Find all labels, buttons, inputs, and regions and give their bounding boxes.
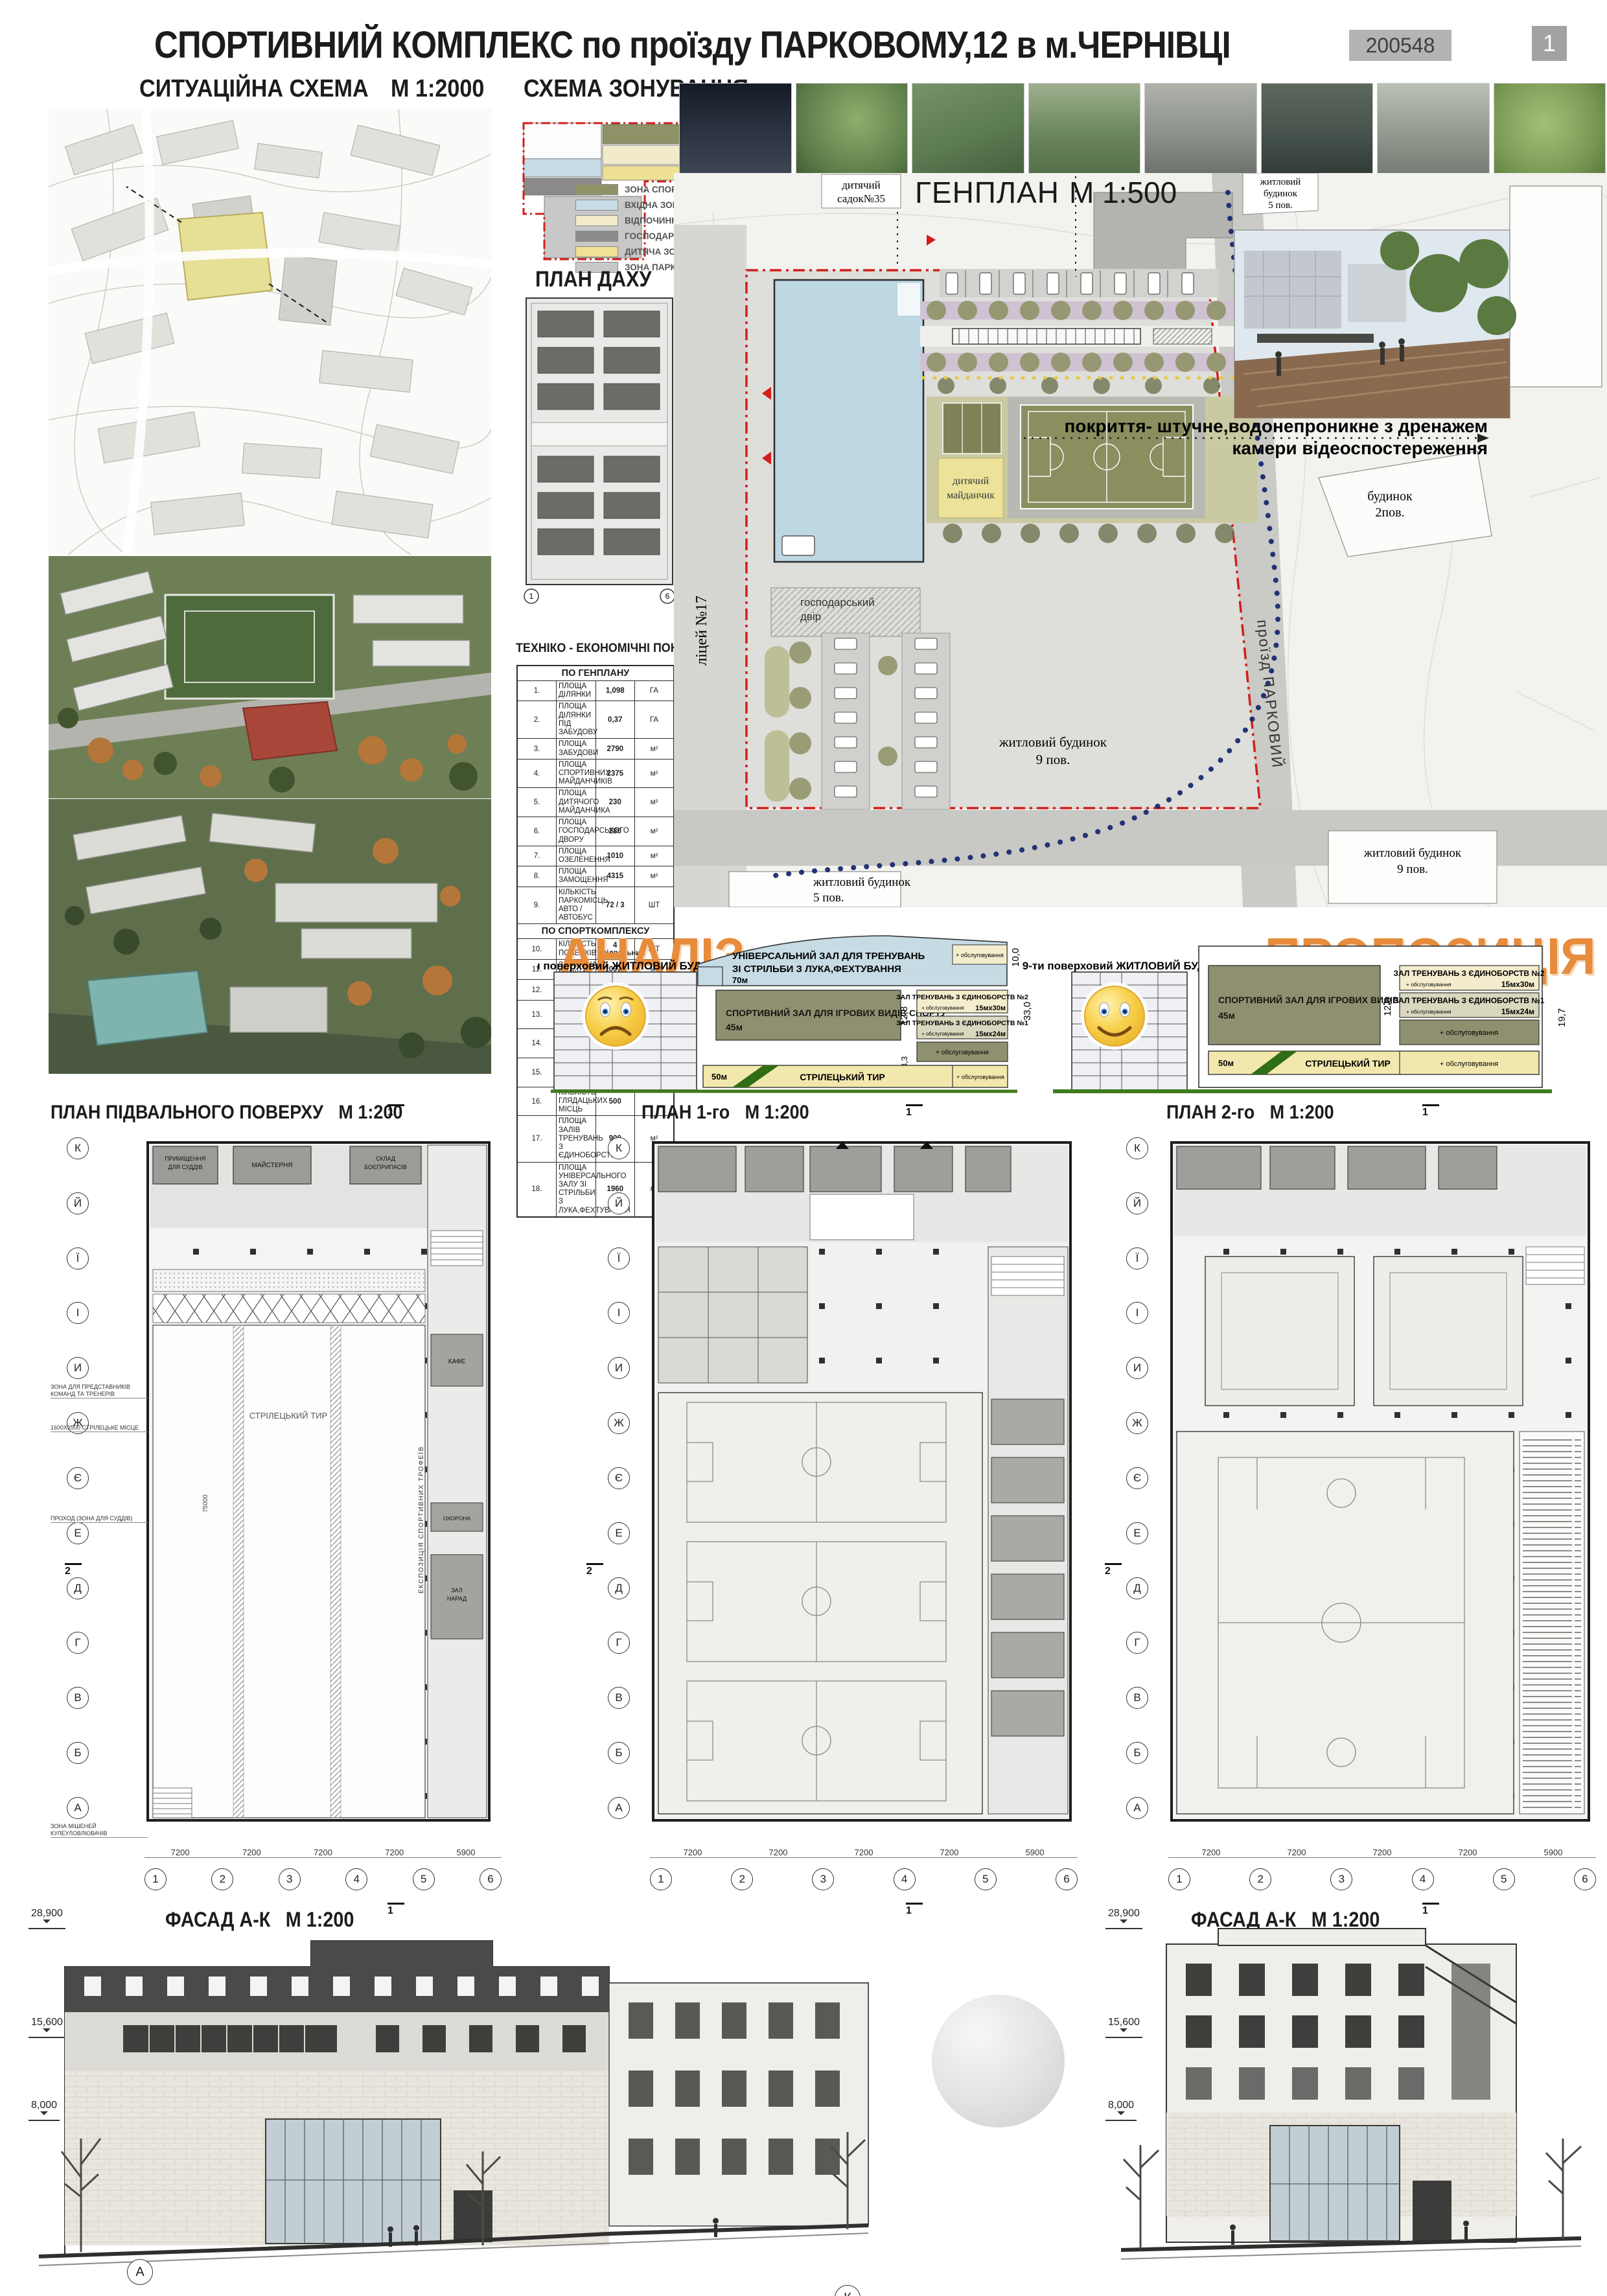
aerial-photo-stadium [49, 556, 491, 798]
tep-row: 4. ПЛОЩА СПОРТИВНИХ МАЙДАНЧИКІВ 2375 м² [517, 759, 674, 788]
svg-text:СТРІЛЕЦЬКИЙ ТИР: СТРІЛЕЦЬКИЙ ТИР [800, 1071, 885, 1082]
svg-text:ЗАЛ ТРЕНУВАНЬ З ЄДИНОБОРСТВ №: ЗАЛ ТРЕНУВАНЬ З ЄДИНОБОРСТВ №2 [1394, 969, 1545, 978]
svg-text:9 пов.: 9 пов. [1036, 752, 1070, 767]
axis-letter: Б [608, 1742, 630, 1764]
first-floor-plan-title: ПЛАН 1-го М 1:200 [642, 1102, 809, 1124]
coating-note: покриття- штучне,водонепроникне з дренаж… [1064, 416, 1488, 436]
axis-letters: КЙЇІИЖЄЕДГВБА [608, 1137, 630, 1819]
situation-scheme-title: СИТУАЦІЙНА СХЕМА М 1:2000 [139, 75, 484, 103]
axis-letter: Д [608, 1577, 630, 1599]
axis-letter: Є [1126, 1467, 1148, 1489]
axis-letter: Ї [1126, 1247, 1148, 1270]
axis-letter: Е [67, 1522, 89, 1544]
axis-letter: А [608, 1797, 630, 1819]
svg-text:будинок: будинок [1264, 189, 1298, 199]
axis-number: 2 [1249, 1868, 1271, 1890]
axis-letter: В [1126, 1687, 1148, 1709]
tep-group-genplan: ПО ГЕНПЛАНУ [517, 666, 674, 681]
svg-text:10,0: 10,0 [1010, 948, 1021, 967]
axis-number: 1 [145, 1868, 167, 1890]
svg-text:житловий: житловий [1260, 177, 1301, 187]
axis-letter: Г [1126, 1632, 1148, 1654]
axis-number: 5 [1493, 1868, 1515, 1890]
axis-numbers: 123456 [650, 1868, 1078, 1890]
analysis-proposal-diagrams: 9-ти поверховий ЖИТЛОВИЙ БУДИНОК УНІВЕРС… [538, 907, 1607, 1102]
sheet-number-badge: 1 [1532, 26, 1567, 61]
svg-text:ЗАЛ ТРЕНУВАНЬ З ЄДИНОБОРСТВ №: ЗАЛ ТРЕНУВАНЬ З ЄДИНОБОРСТВ №1 [1394, 996, 1545, 1005]
svg-text:70м: 70м [732, 975, 748, 985]
facade-a-k-drawing [26, 1905, 881, 2281]
genplan-map: господарський двір [674, 173, 1607, 907]
svg-text:ПРИМІЩЕННЯ: ПРИМІЩЕННЯ [165, 1155, 206, 1162]
svg-text:+ обслуговування: + обслуговування [956, 952, 1004, 958]
svg-text:майданчик: майданчик [947, 490, 995, 501]
svg-text:5 пов.: 5 пов. [1268, 200, 1293, 211]
legend-swatch [575, 231, 618, 242]
axis-letter: А [1126, 1797, 1148, 1819]
facade-proposal-drawing [1102, 1905, 1607, 2281]
svg-text:50м: 50м [1218, 1058, 1234, 1068]
sphere-watermark [932, 1995, 1065, 2128]
axis-letter: Й [67, 1192, 89, 1214]
axis-number: 5 [975, 1868, 997, 1890]
axis-letter: Ї [67, 1247, 89, 1270]
legend-swatch [575, 184, 618, 195]
svg-text:СКЛАД: СКЛАД [376, 1155, 395, 1162]
axis-letter: И [608, 1357, 630, 1379]
svg-text:СТРІЛЕЦЬКИЙ ТИР: СТРІЛЕЦЬКИЙ ТИР [249, 1411, 327, 1421]
axis-number: 1 [1168, 1868, 1190, 1890]
svg-text:М 1:500: М 1:500 [1069, 176, 1177, 209]
photo-kids-scooters [1494, 83, 1606, 174]
svg-text:45м: 45м [726, 1022, 743, 1032]
axis-letter: Д [1126, 1577, 1148, 1599]
svg-text:+ обслуговування: + обслуговування [956, 1074, 1004, 1080]
axis-number: 3 [1330, 1868, 1352, 1890]
camera-note: камери відеоспостереження [1232, 438, 1488, 458]
axis-letter: Ї [608, 1247, 630, 1270]
photo-night-park-lighting [679, 83, 792, 174]
axis-letter: Ж [608, 1412, 630, 1434]
svg-text:ЕКСПОЗИЦІЯ СПОРТИВНИХ ТРОФЕЇВ: ЕКСПОЗИЦІЯ СПОРТИВНИХ ТРОФЕЇВ [417, 1446, 425, 1594]
photo-rollerblading-people [1377, 83, 1490, 174]
svg-text:ЗАЛ ТРЕНУВАНЬ З ЄДИНОБОРСТВ №: ЗАЛ ТРЕНУВАНЬ З ЄДИНОБОРСТВ №1 [896, 1019, 1028, 1027]
reference-photo-strip [679, 83, 1606, 174]
photo-bike-lane [1144, 83, 1257, 174]
axis-letter: И [1126, 1357, 1148, 1379]
svg-text:15мх30м: 15мх30м [1501, 980, 1534, 989]
axis-letters: КЙЇІИЖЄЕДГВБА [1126, 1137, 1148, 1819]
svg-text:ліцей №17: ліцей №17 [693, 596, 710, 666]
axis-number: 4 [345, 1868, 367, 1890]
sport-hall-block [1208, 966, 1380, 1045]
second-floor-plan: КЙЇІИЖЄЕДГВБА [1089, 1137, 1601, 1915]
axis-letter: Є [67, 1467, 89, 1489]
axis-letter: Г [67, 1632, 89, 1654]
sad-face-icon [582, 982, 649, 1050]
basement-plan: КЙЇІИЖЄЕДГВБА ПРИМІЩЕННЯ ДЛЯ СУДДІВ МАЙС… [45, 1137, 499, 1915]
axis-letter: Б [67, 1742, 89, 1764]
presentation-board: СПОРТИВНИЙ КОМПЛЕКС по проїзду ПАРКОВОМУ… [0, 0, 1607, 2296]
tep-row: 2. ПЛОЩА ДІЛЯНКИ ПІД ЗАБУДОВУ 0,37 ГА [517, 701, 674, 739]
roof-plan: 1 6 [517, 293, 682, 610]
svg-text:15мх30м: 15мх30м [975, 1004, 1006, 1012]
axis-letter: В [608, 1687, 630, 1709]
svg-text:СПОРТИВНИЙ ЗАЛ ДЛЯ ІГРОВИХ ВИД: СПОРТИВНИЙ ЗАЛ ДЛЯ ІГРОВИХ ВИДІВ СПОРТУ [726, 1007, 947, 1018]
svg-text:МАЙСТЕРНЯ: МАЙСТЕРНЯ [252, 1161, 293, 1169]
svg-text:УНІВЕРСАЛЬНИЙ ЗАЛ ДЛЯ ТРЕНУВАН: УНІВЕРСАЛЬНИЙ ЗАЛ ДЛЯ ТРЕНУВАНЬ [732, 950, 925, 962]
svg-text:1: 1 [529, 592, 534, 601]
sports-complex-building [774, 280, 923, 562]
tep-title: ТЕХНІКО - ЕКОНОМІЧНІ ПОКАЗНИКИ [516, 642, 665, 656]
facade-axis: А [127, 2259, 153, 2285]
axis-letter: К [1126, 1137, 1148, 1159]
svg-text:житловий будинок: житловий будинок [999, 734, 1107, 750]
axis-letters: КЙЇІИЖЄЕДГВБА [67, 1137, 89, 1819]
svg-text:ЗАЛ: ЗАЛ [451, 1587, 463, 1594]
park-perspective-inset [1234, 230, 1516, 418]
axis-numbers: 123456 [1168, 1868, 1596, 1890]
svg-text:дитячий: дитячий [953, 476, 989, 487]
tep-row: 5. ПЛОЩА ДИТЯЧОГО МАЙДАНЧИКА 230 м² [517, 788, 674, 817]
axis-letter: Й [1126, 1192, 1148, 1214]
svg-text:12,8: 12,8 [1382, 997, 1393, 1016]
svg-text:господарський: господарський [800, 596, 875, 609]
kids-playground-area [938, 458, 1003, 518]
axis-letter: К [67, 1137, 89, 1159]
axis-letter: І [1126, 1302, 1148, 1324]
axis-number: 6 [1574, 1868, 1596, 1890]
section-mark: 1 [387, 1104, 404, 1119]
tep-row: 7. ПЛОЩА ОЗЕЛЕНЕННЯ 1010 м² [517, 846, 674, 866]
axis-letter: І [67, 1302, 89, 1324]
svg-text:дитячий: дитячий [842, 179, 881, 191]
svg-text:33,0: 33,0 [1022, 1002, 1033, 1021]
axis-letter: І [608, 1302, 630, 1324]
axis-letter: Є [608, 1467, 630, 1489]
svg-text:житловий будинок: житловий будинок [813, 875, 911, 889]
facade-axis: К [835, 2285, 861, 2296]
happy-face-icon [1081, 982, 1148, 1050]
tep-row: 3. ПЛОЩА ЗАБУДОВИ 2790 м² [517, 739, 674, 759]
svg-text:+ обслуговування: + обслуговування [1440, 1060, 1498, 1068]
axis-letter: Г [608, 1632, 630, 1654]
photo-playground [796, 83, 908, 174]
svg-text:будинок: будинок [1367, 489, 1413, 504]
axis-number: 4 [1412, 1868, 1434, 1890]
svg-text:БОЄПРИПАСІВ: БОЄПРИПАСІВ [364, 1164, 407, 1170]
tep-row: 1. ПЛОЩА ДІЛЯНКИ 1,098 ГА [517, 681, 674, 701]
project-code-badge: 200548 [1349, 30, 1451, 61]
second-floor-plan-title: ПЛАН 2-го М 1:200 [1166, 1102, 1334, 1124]
axis-letter: А [67, 1797, 89, 1819]
photo-outdoor-fitness [912, 83, 1024, 174]
axis-letter: К [608, 1137, 630, 1159]
svg-text:ОХОРОНА: ОХОРОНА [443, 1515, 470, 1522]
svg-text:45м: 45м [1218, 1010, 1235, 1021]
section-mark: 1 [906, 1104, 923, 1119]
section-mark: 1 [1422, 1104, 1439, 1119]
axis-letter: Б [1126, 1742, 1148, 1764]
svg-text:15мх24м: 15мх24м [975, 1030, 1006, 1038]
aerial-photo-district [49, 799, 491, 1074]
svg-text:+ обслуговування: + обслуговування [921, 1005, 964, 1011]
axis-letter: В [67, 1687, 89, 1709]
svg-text:двір: двір [800, 610, 821, 623]
axis-number: 2 [211, 1868, 233, 1890]
svg-text:15мх24м: 15мх24м [1501, 1007, 1534, 1016]
svg-text:садок№35: садок№35 [837, 192, 885, 205]
axis-number: 3 [279, 1868, 301, 1890]
tep-row: 6. ПЛОЩА ГОСПОДАРСЬКОГО ДВОРУ 280 м² [517, 817, 674, 846]
tep-row: 8. ПЛОЩА ЗАМОЩЕННЯ 4315 м² [517, 866, 674, 887]
svg-text:2пов.: 2пов. [1375, 505, 1404, 520]
dimension-row: 72007200720072005900 [145, 1848, 502, 1858]
svg-text:СТРІЛЕЦЬКИЙ ТИР: СТРІЛЕЦЬКИЙ ТИР [1305, 1058, 1391, 1069]
basement-plan-title: ПЛАН ПІДВАЛЬНОГО ПОВЕРХУ М 1:200 [51, 1102, 402, 1124]
dimension-row: 72007200720072005900 [1168, 1848, 1596, 1858]
svg-text:ДЛЯ СУДДІВ: ДЛЯ СУДДІВ [168, 1164, 202, 1170]
axis-letter: И [67, 1357, 89, 1379]
axis-numbers: 123456 [145, 1868, 502, 1890]
axis-letter: Е [1126, 1522, 1148, 1544]
first-floor-plan: КЙЇІИЖЄЕДГВБА [570, 1137, 1082, 1915]
svg-text:9 пов.: 9 пов. [1397, 863, 1428, 876]
dimension-row: 72007200720072005900 [650, 1848, 1078, 1858]
photo-bike-pavilion [1261, 83, 1374, 174]
axis-number: 2 [731, 1868, 753, 1890]
svg-text:+ обслуговування: + обслуговування [921, 1031, 964, 1037]
legend-swatch [575, 215, 618, 226]
svg-text:НАРАД: НАРАД [447, 1595, 467, 1602]
axis-number: 3 [812, 1868, 834, 1890]
situation-map [49, 109, 491, 555]
svg-text:+ обслуговування: + обслуговування [1406, 981, 1451, 988]
svg-text:ЗАЛ ТРЕНУВАНЬ З ЄДИНОБОРСТВ №: ЗАЛ ТРЕНУВАНЬ З ЄДИНОБОРСТВ №2 [896, 993, 1028, 1001]
svg-text:75000: 75000 [202, 1494, 209, 1513]
axis-letter: Й [608, 1192, 630, 1214]
svg-text:50м: 50м [711, 1072, 727, 1082]
svg-text:6: 6 [665, 592, 670, 601]
svg-text:5 пов.: 5 пов. [813, 891, 844, 905]
legend-swatch [575, 246, 618, 257]
page-title: СПОРТИВНИЙ КОМПЛЕКС по проїзду ПАРКОВОМУ… [154, 23, 1231, 67]
axis-number: 1 [650, 1868, 672, 1890]
svg-text:+ обслуговування: + обслуговування [936, 1049, 989, 1056]
svg-text:+ обслуговування: + обслуговування [1440, 1029, 1498, 1037]
svg-text:19,7: 19,7 [1556, 1008, 1567, 1027]
genplan-title: ГЕНПЛАН [915, 176, 1059, 209]
svg-text:+ обслуговування: + обслуговування [1406, 1008, 1451, 1015]
axis-number: 5 [413, 1868, 435, 1890]
axis-number: 6 [1056, 1868, 1078, 1890]
axis-letter: Д [67, 1577, 89, 1599]
axis-number: 6 [480, 1868, 502, 1890]
axis-letter: Е [608, 1522, 630, 1544]
photo-sports-court-park [1028, 83, 1141, 174]
svg-text:ЗІ СТРІЛЬБИ З ЛУКА,ФЕХТУВАННЯ: ЗІ СТРІЛЬБИ З ЛУКА,ФЕХТУВАННЯ [732, 964, 901, 975]
svg-text:житловий будинок: житловий будинок [1363, 846, 1462, 860]
legend-swatch [575, 200, 618, 211]
svg-text:КАФЕ: КАФЕ [448, 1358, 466, 1365]
axis-number: 4 [894, 1868, 916, 1890]
axis-letter: Ж [1126, 1412, 1148, 1434]
